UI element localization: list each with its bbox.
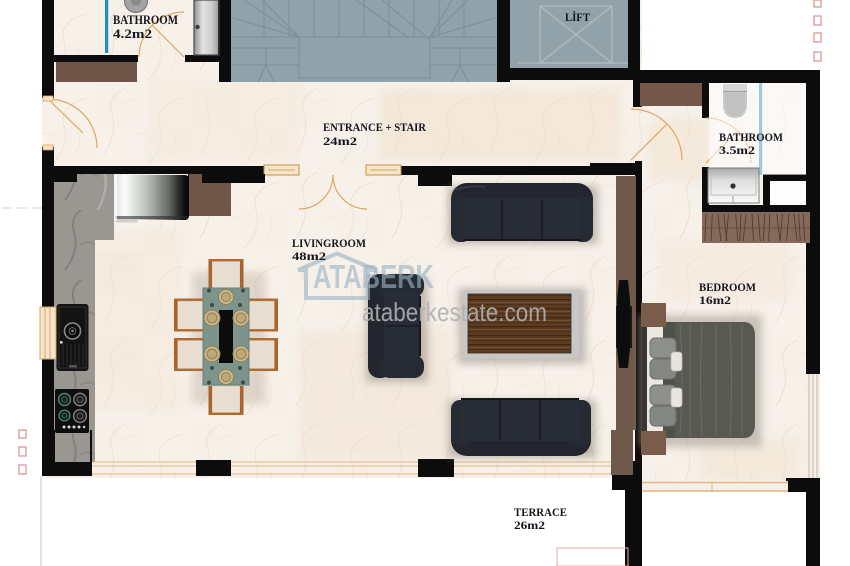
svg-text:26m2: 26m2 [514, 520, 545, 532]
svg-text:3.5m2: 3.5m2 [719, 143, 755, 157]
svg-text:ATABERK: ATABERK [313, 258, 434, 295]
svg-text:16m2: 16m2 [699, 293, 731, 307]
svg-text:ENTRANCE + STAIR: ENTRANCE + STAIR [323, 120, 426, 134]
svg-text:4.2m2: 4.2m2 [113, 27, 152, 41]
svg-text:LIVINGROOM: LIVINGROOM [292, 236, 366, 250]
svg-text:BATHROOM: BATHROOM [719, 130, 783, 144]
svg-text:LİFT: LİFT [565, 10, 590, 24]
svg-text:48m2: 48m2 [292, 249, 326, 263]
svg-text:ataberkestate.com: ataberkestate.com [362, 297, 547, 327]
svg-text:BEDROOM: BEDROOM [699, 280, 756, 294]
svg-text:24m2: 24m2 [323, 134, 357, 148]
svg-text:TERRACE: TERRACE [514, 507, 567, 519]
svg-text:BATHROOM: BATHROOM [113, 13, 178, 27]
